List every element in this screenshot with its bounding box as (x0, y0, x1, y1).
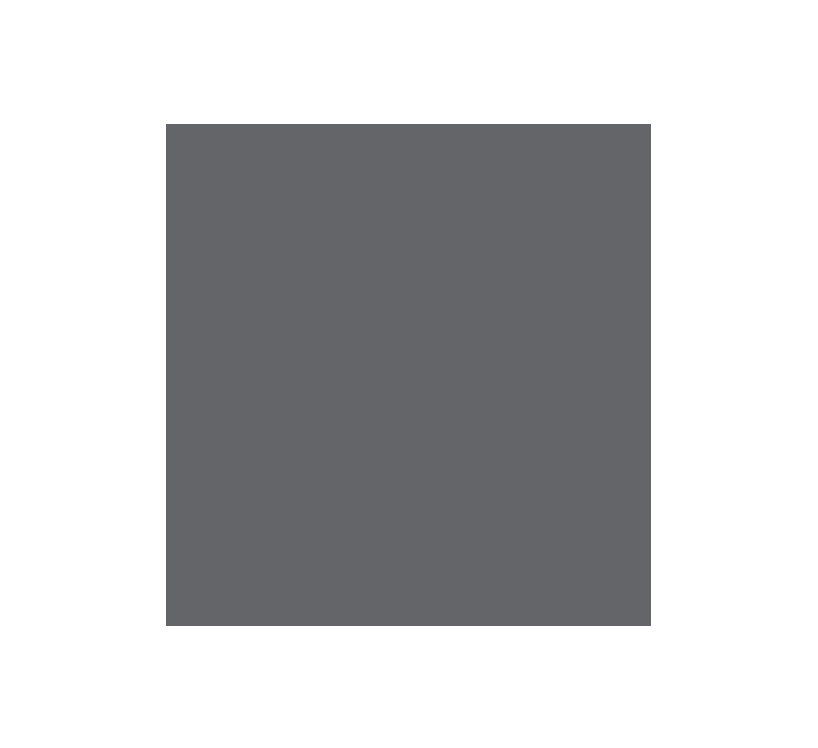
page-background (0, 0, 818, 748)
blank-gray-panel (166, 124, 651, 626)
